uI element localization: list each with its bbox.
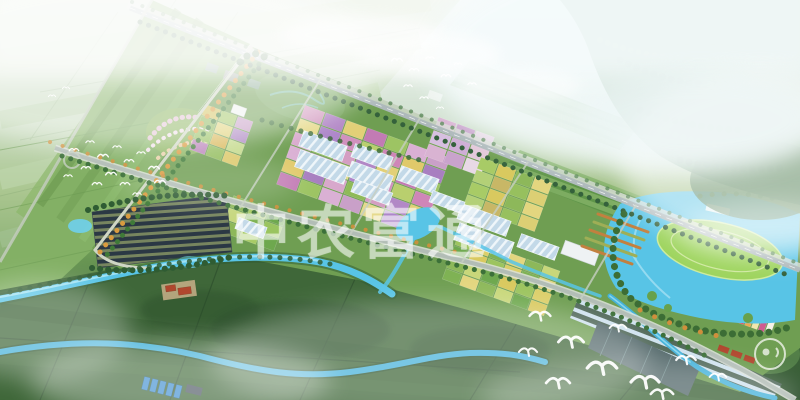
scene-canvas (0, 0, 800, 400)
aerial-masterplan-rendering: 中农富通 (0, 0, 800, 400)
